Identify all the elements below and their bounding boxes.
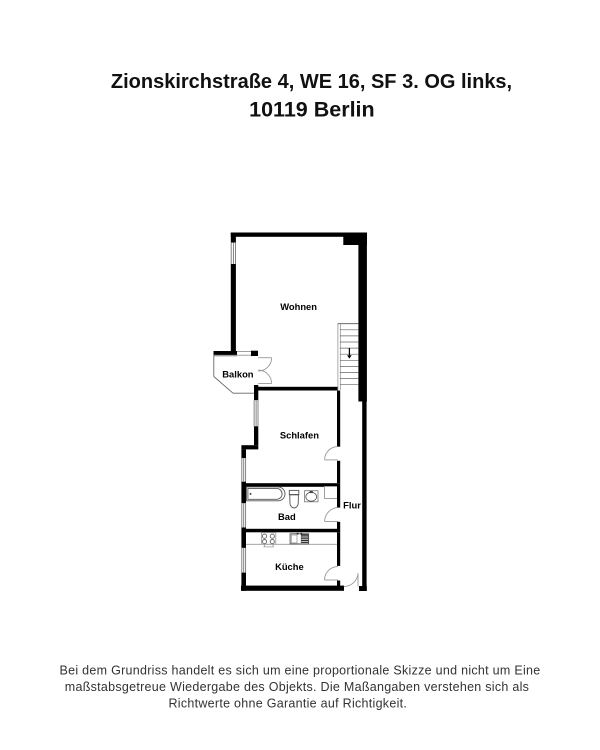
svg-text:Küche: Küche [275, 561, 304, 572]
svg-text:Bad: Bad [278, 511, 296, 522]
svg-text:Balkon: Balkon [222, 369, 254, 380]
svg-text:maßstabsgetreue Wiedergabe des: maßstabsgetreue Wiedergabe des Objekts. … [65, 680, 529, 694]
svg-text:Bei dem Grundriss handelt es s: Bei dem Grundriss handelt es sich um ein… [60, 663, 541, 677]
svg-text:Schlafen: Schlafen [280, 429, 319, 440]
svg-text:10119 Berlin: 10119 Berlin [249, 98, 375, 122]
svg-text:Wohnen: Wohnen [280, 301, 317, 312]
svg-text:Zionskirchstraße 4, WE 16, SF: Zionskirchstraße 4, WE 16, SF 3. OG link… [111, 71, 512, 93]
svg-text:Flur: Flur [343, 500, 361, 511]
svg-text:Richtwerte ohne Garantie auf R: Richtwerte ohne Garantie auf Richtigkeit… [168, 696, 407, 710]
